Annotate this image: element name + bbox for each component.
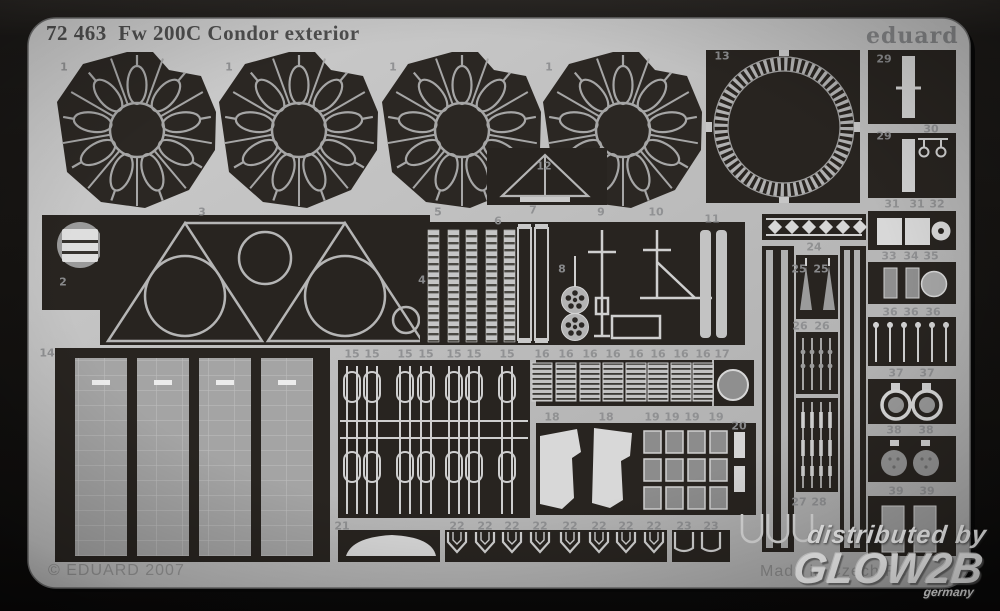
photo-etch-sheet-photo: 1111132929303131323334353636363737383839… bbox=[0, 0, 1000, 611]
hinge-strips-part-15 bbox=[338, 360, 530, 518]
flap-panels-part-14 bbox=[55, 348, 330, 562]
louvers-part-16-17 bbox=[532, 360, 754, 406]
ring-part-13 bbox=[706, 50, 860, 203]
sheet-title: 72 463 Fw 200C Condor exterior bbox=[46, 21, 360, 46]
copyright-text: © EDUARD 2007 bbox=[48, 562, 185, 580]
triangle-part-12 bbox=[487, 148, 607, 205]
eduard-brand-logo: eduard bbox=[866, 23, 959, 49]
made-in-text: Made in Czech Rep. bbox=[760, 563, 923, 581]
lattice-part-3 bbox=[100, 215, 430, 345]
sheet-artwork bbox=[0, 0, 1000, 611]
middle-parts-4-11 bbox=[420, 222, 745, 345]
brackets-parts-18-20 bbox=[536, 423, 756, 515]
